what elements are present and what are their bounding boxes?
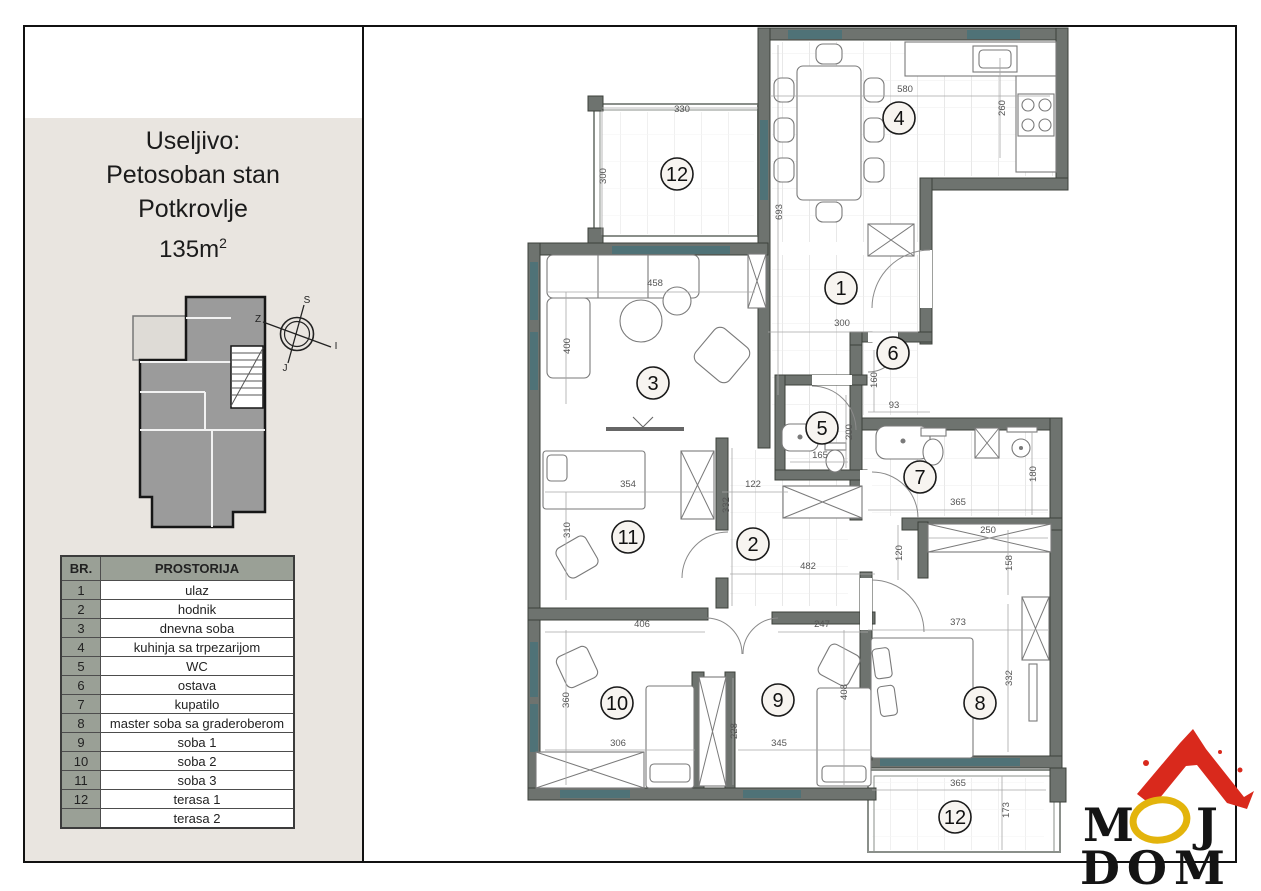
room-number-label: 4: [893, 108, 904, 130]
room-name-cell: kupatilo: [101, 695, 295, 714]
dimension-label: 693: [774, 204, 785, 220]
room-circle: [939, 801, 971, 833]
closet: [699, 677, 726, 786]
legend-header-prostorija: PROSTORIJA: [101, 556, 295, 581]
table-row: 5WC: [61, 657, 294, 676]
dimension-label: 228: [729, 723, 740, 739]
sidebar-top-white: [24, 27, 362, 118]
brand-logo: M J DOM: [1080, 729, 1254, 891]
wardrobe: [928, 524, 1051, 552]
room-number-cell: 12: [61, 790, 101, 809]
dimension-label: 260: [997, 100, 1008, 116]
room-number-label: 5: [816, 418, 827, 440]
floorplan-page: Useljivo: Petosoban stan Potkrovlje 135m…: [0, 0, 1261, 891]
room-name-cell: ulaz: [101, 581, 295, 600]
table-row: 4kuhinja sa trpezarijom: [61, 638, 294, 657]
wardrobe: [681, 451, 714, 519]
room-number-label: 3: [647, 373, 658, 395]
table-row: 1ulaz: [61, 581, 294, 600]
dimension-label: 365: [950, 497, 966, 508]
room-circle: [637, 367, 669, 399]
logo-yellow-o: [1130, 796, 1189, 843]
room-number-label: 7: [914, 467, 925, 489]
room-circle: [806, 412, 838, 444]
dimension-label: 158: [1004, 555, 1015, 571]
bed: [817, 688, 871, 786]
armchair: [691, 324, 753, 386]
dining-table: [797, 66, 861, 200]
dimension-label: 360: [561, 692, 572, 708]
toilet: [826, 450, 844, 472]
title-line-1: Useljivo:: [24, 124, 362, 158]
room-number-cell: 11: [61, 771, 101, 790]
dimension-label: 408: [839, 684, 850, 700]
room-name-cell: soba 3: [101, 771, 295, 790]
sofa: [547, 255, 699, 298]
room-circle: [877, 337, 909, 369]
table-row: 2hodnik: [61, 600, 294, 619]
toilet: [923, 439, 943, 465]
dimension-label: 354: [620, 479, 636, 490]
room-circle: [661, 158, 693, 190]
room-number-cell: 3: [61, 619, 101, 638]
room-number-cell: 9: [61, 733, 101, 752]
room-number-label: 8: [974, 693, 985, 715]
room-name-cell: master soba sa graderoberom: [101, 714, 295, 733]
table-row: 6ostava: [61, 676, 294, 695]
legend-header-br: BR.: [61, 556, 101, 581]
door-arcs: [682, 250, 930, 654]
room-number-cell: 6: [61, 676, 101, 695]
bed: [543, 451, 645, 509]
shower: [1012, 439, 1030, 457]
double-bed: [871, 638, 973, 758]
room-number-cell: 2: [61, 600, 101, 619]
logo-letter-j: J: [1192, 798, 1218, 852]
dimension-label: 300: [598, 168, 609, 184]
room-number-label: 12: [666, 164, 688, 186]
shaft: [868, 224, 914, 256]
x-marks: [536, 224, 1051, 788]
hall-closet: [783, 486, 862, 518]
room-number-cell: 1: [61, 581, 101, 600]
dimension-label: 365: [950, 778, 966, 789]
room-name-cell: terasa 2: [101, 809, 295, 829]
table-row: 3dnevna soba: [61, 619, 294, 638]
bed: [646, 686, 694, 788]
dimension-label: 373: [950, 617, 966, 628]
logo-roof-shape: [1137, 729, 1254, 809]
dimension-label: 345: [771, 738, 787, 749]
room-name-cell: kuhinja sa trpezarijom: [101, 638, 295, 657]
table-row: 9soba 1: [61, 733, 294, 752]
dimension-label: 458: [647, 278, 663, 289]
windows: [530, 30, 1020, 798]
room-number-cell: [61, 809, 101, 829]
dimension-label: 306: [610, 738, 626, 749]
room-number-labels: 12416357112109812: [601, 102, 996, 833]
room-circle: [601, 687, 633, 719]
room-circle: [964, 687, 996, 719]
wardrobe: [1022, 597, 1049, 660]
stove: [1018, 94, 1054, 136]
room-circle: [825, 272, 857, 304]
table-row: 12terasa 1: [61, 790, 294, 809]
room-name-cell: hodnik: [101, 600, 295, 619]
table-row: 11soba 3: [61, 771, 294, 790]
logo-letter-m: M: [1083, 798, 1134, 852]
room-number-label: 6: [887, 343, 898, 365]
furniture: [536, 42, 1056, 788]
room-number-label: 1: [835, 278, 846, 300]
listing-title: Useljivo: Petosoban stan Potkrovlje 135m…: [24, 124, 362, 267]
room-number-label: 10: [606, 693, 628, 715]
room-circle: [762, 684, 794, 716]
table-row: 8master soba sa graderoberom: [61, 714, 294, 733]
dimension-label: 300: [834, 318, 850, 329]
dimension-label: 310: [562, 522, 573, 538]
room-number-label: 12: [944, 807, 966, 829]
dimension-label: 160: [869, 372, 880, 388]
dimension-label: 406: [634, 619, 650, 630]
dimension-label: 93: [889, 400, 900, 411]
room-name-cell: ostava: [101, 676, 295, 695]
shaft: [748, 254, 766, 308]
room-circle: [612, 521, 644, 553]
room-name-cell: soba 2: [101, 752, 295, 771]
room-number-cell: 7: [61, 695, 101, 714]
room-number-cell: 5: [61, 657, 101, 676]
dimension-label: 165: [812, 450, 828, 461]
room-name-cell: WC: [101, 657, 295, 676]
rooms-legend-table: BR. PROSTORIJA 1ulaz2hodnik3dnevna soba4…: [60, 555, 295, 829]
table-row: terasa 2: [61, 809, 294, 829]
room-circle: [904, 461, 936, 493]
dimension-lines: [545, 45, 1050, 850]
room-circle: [737, 528, 769, 560]
dimension-label: 332: [721, 497, 732, 513]
dimension-label: 250: [980, 525, 996, 536]
logo-word-dom: DOM: [1080, 841, 1232, 891]
dimension-label: 173: [1001, 802, 1012, 818]
area-value: 135m2: [24, 226, 362, 267]
room-name-cell: terasa 1: [101, 790, 295, 809]
title-line-2: Petosoban stan: [24, 158, 362, 192]
dimension-label: 580: [897, 84, 913, 95]
dimension-label: 482: [800, 561, 816, 572]
room-name-cell: dnevna soba: [101, 619, 295, 638]
dimension-label: 247: [814, 619, 830, 630]
dimension-label: 180: [1028, 466, 1039, 482]
tv: [606, 427, 684, 431]
table-row: 10soba 2: [61, 752, 294, 771]
dimension-labels: 3303005802606933004584001609316520036518…: [561, 84, 1039, 818]
floor-grid: [602, 42, 1054, 850]
dimension-label: 332: [1004, 670, 1015, 686]
table-row: 7kupatilo: [61, 695, 294, 714]
dimension-label: 122: [745, 479, 761, 490]
terrace-parapets: [594, 104, 1060, 852]
kitchen-counter: [905, 42, 1056, 76]
legend-header-row: BR. PROSTORIJA: [61, 556, 294, 581]
room-number-cell: 4: [61, 638, 101, 657]
room-number-label: 11: [618, 527, 639, 549]
wardrobe: [536, 752, 644, 788]
wc-sink: [782, 424, 818, 451]
terrace-posts: [588, 96, 1066, 802]
coffee-table: [620, 300, 662, 342]
dimension-label: 200: [844, 424, 855, 440]
room-name-cell: soba 1: [101, 733, 295, 752]
door-openings: [812, 250, 932, 630]
room-number-cell: 10: [61, 752, 101, 771]
room-number-cell: 8: [61, 714, 101, 733]
dimension-label: 120: [894, 545, 905, 561]
title-line-3: Potkrovlje: [24, 192, 362, 226]
walls: [528, 28, 1068, 800]
dimension-label: 330: [674, 104, 690, 115]
room-number-label: 9: [772, 690, 783, 712]
bath-sink: [876, 426, 930, 459]
room-circle: [883, 102, 915, 134]
dimension-label: 400: [562, 338, 573, 354]
room-number-label: 2: [747, 534, 758, 556]
